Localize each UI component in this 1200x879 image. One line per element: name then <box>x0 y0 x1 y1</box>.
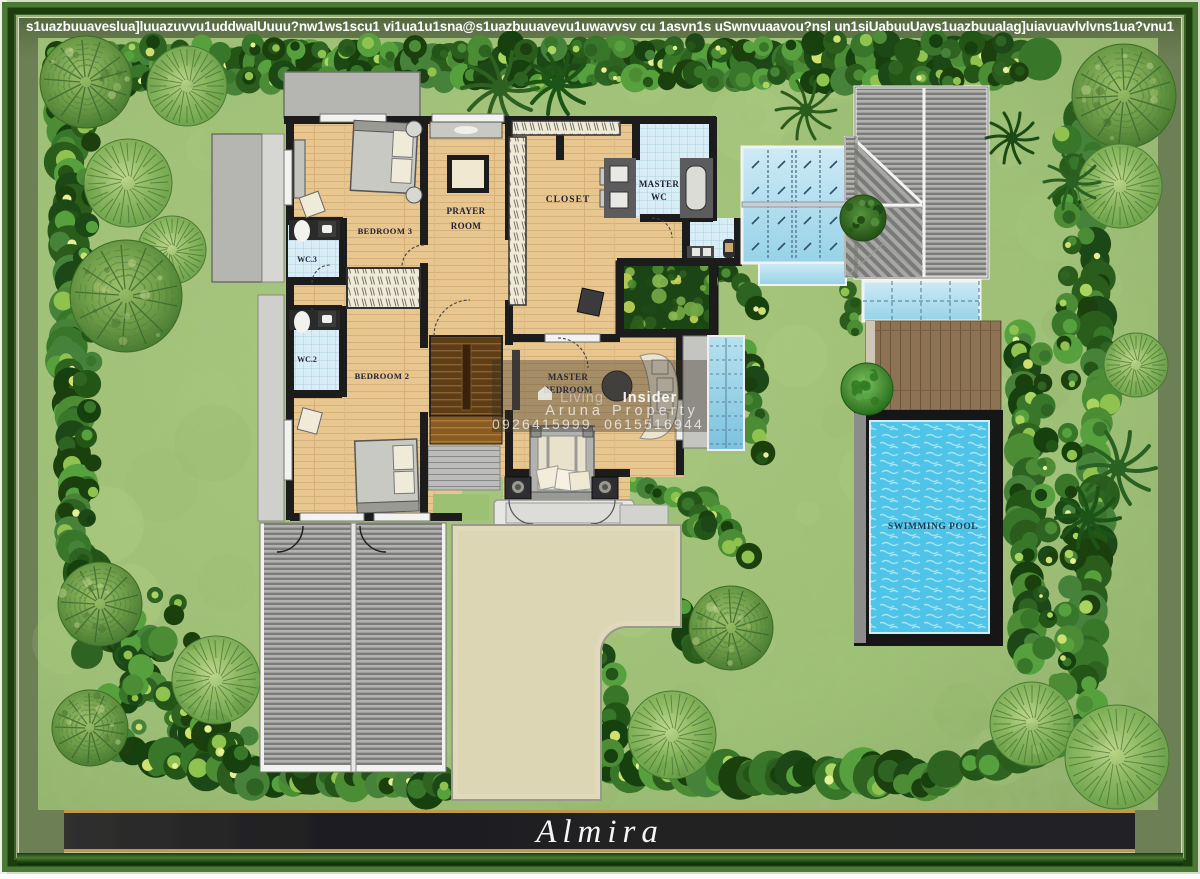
svg-text:s1uazbuuaveslua]luuazuvvu1uddw: s1uazbuuaveslua]luuazuvvu1uddwalUuuu?nw1… <box>26 19 1174 34</box>
svg-text:PRAYER: PRAYER <box>446 206 485 216</box>
svg-text:0926415999, 0615516944: 0926415999, 0615516944 <box>492 416 704 432</box>
svg-text:WC.2: WC.2 <box>297 355 317 364</box>
svg-text:MASTER: MASTER <box>639 179 680 189</box>
svg-text:WC: WC <box>651 192 667 202</box>
svg-text:WC.3: WC.3 <box>297 255 317 264</box>
svg-text:Almira: Almira <box>534 814 664 850</box>
svg-text:ROOM: ROOM <box>451 221 482 231</box>
svg-text:BEDROOM 2: BEDROOM 2 <box>355 371 410 381</box>
svg-text:SWIMMING POOL: SWIMMING POOL <box>888 522 978 532</box>
svg-text:BEDROOM 3: BEDROOM 3 <box>358 226 413 236</box>
svg-text:CLOSET: CLOSET <box>546 195 591 205</box>
